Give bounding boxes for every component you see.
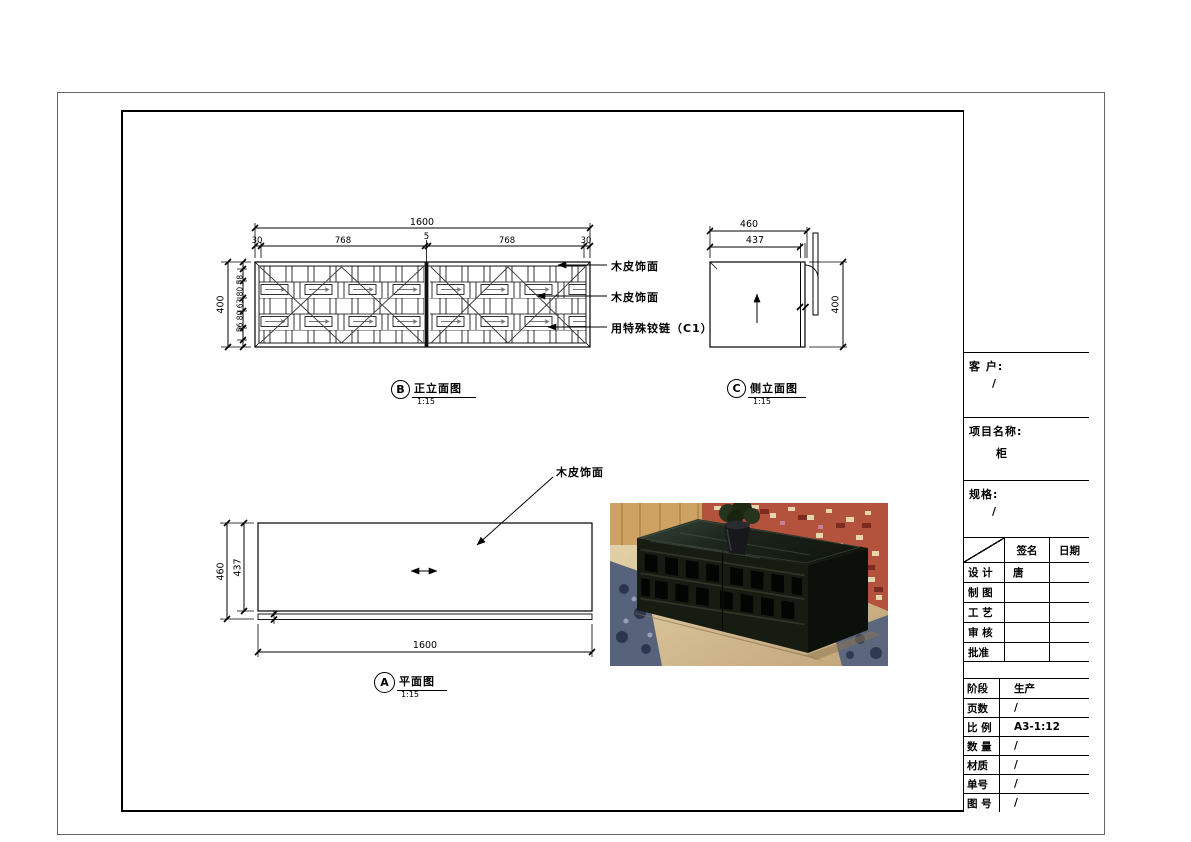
side-view-scale: 1:15 <box>753 397 771 406</box>
plan-view-letter: A <box>380 676 389 689</box>
quantity-value: / <box>999 736 1089 755</box>
row-draft-date <box>1049 582 1089 602</box>
stage-label: 阶段 <box>964 679 999 698</box>
front-view-scale: 1:15 <box>417 397 435 406</box>
pages-value: / <box>999 698 1089 717</box>
front-view-letter: B <box>396 383 404 396</box>
drawing-number-label: 图 号 <box>964 793 999 812</box>
row-draft-sign <box>1004 582 1049 602</box>
row-design-label: 设 计 <box>964 562 1004 582</box>
stage-value: 生产 <box>999 679 1089 698</box>
callout-veneer-mid: 木皮饰面 <box>611 289 659 305</box>
client-label: 客 户: <box>964 353 1089 374</box>
callout-special-hinge: 用特殊铰链（C1） <box>611 320 713 336</box>
side-view-marker: C <box>727 379 746 398</box>
front-dim-height: 400 <box>216 290 227 320</box>
spec-value: / <box>992 505 996 518</box>
front-dim-seg-right-door: 768 <box>477 236 537 246</box>
project-value: 柜 <box>996 445 1007 461</box>
signature-diagonal-cell <box>964 538 1004 562</box>
plan-view <box>220 477 595 657</box>
front-dim-seg-center: 5 <box>416 232 437 242</box>
scale-label: 比 例 <box>964 717 999 736</box>
material-label: 材质 <box>964 755 999 774</box>
sign-column-header: 签名 <box>1004 538 1049 562</box>
side-elevation <box>707 226 847 350</box>
row-design-sign: 唐 <box>1004 562 1049 582</box>
front-view-marker: B <box>391 380 410 399</box>
side-view-title: 侧立面图 <box>748 380 806 398</box>
material-value: / <box>999 755 1089 774</box>
plan-view-scale: 1:15 <box>401 690 419 699</box>
drawing-sheet: { "drawing": { "front": { "letter": "B",… <box>0 0 1191 842</box>
callout-veneer-top: 木皮饰面 <box>611 258 659 274</box>
row-design-date <box>1049 562 1089 582</box>
photo-scene <box>610 503 888 666</box>
front-dim-seg-right-end: 30 <box>573 236 599 246</box>
info-table: 阶段 生产 页数 / 比 例 A3-1:12 数 量 / 材质 / 单号 / 图… <box>964 678 1089 812</box>
front-dim-seg-left-door: 768 <box>313 236 373 246</box>
front-dim-seg-left-end: 30 <box>244 236 270 246</box>
row-draft-label: 制 图 <box>964 582 1004 602</box>
product-photo <box>610 503 888 666</box>
side-dim-depth-inner: 437 <box>734 235 776 246</box>
order-number-label: 单号 <box>964 774 999 793</box>
front-view-title: 正立面图 <box>412 380 476 398</box>
row-approve-label: 批准 <box>964 642 1004 662</box>
pages-label: 页数 <box>964 698 999 717</box>
row-review-date <box>1049 622 1089 642</box>
client-value: / <box>992 377 996 390</box>
plan-dim-width: 1600 <box>395 640 455 651</box>
row-review-sign <box>1004 622 1049 642</box>
title-block-spec: 规格: / <box>964 480 1089 537</box>
title-block-spacer <box>964 661 1089 678</box>
order-number-value: / <box>999 774 1089 793</box>
row-craft-label: 工 艺 <box>964 602 1004 622</box>
title-block: 客 户: / 项目名称: 柜 规格: / 签名 日期 设 计 唐 制 图 工 艺… <box>963 110 1089 812</box>
title-block-project: 项目名称: 柜 <box>964 417 1089 480</box>
plan-callout-veneer: 木皮饰面 <box>556 464 604 480</box>
project-label: 项目名称: <box>964 418 1089 439</box>
front-dim-total-width: 1600 <box>392 217 452 228</box>
plan-view-title: 平面图 <box>397 673 447 691</box>
signature-table: 签名 日期 设 计 唐 制 图 工 艺 审 核 批准 <box>964 537 1089 661</box>
date-column-header: 日期 <box>1049 538 1089 562</box>
drawing-number-value: / <box>999 793 1089 812</box>
row-approve-date <box>1049 642 1089 662</box>
plan-dim-depth-inner: 437 <box>233 553 244 583</box>
plan-dim-depth-total: 460 <box>216 557 227 587</box>
side-dim-height: 400 <box>831 289 842 321</box>
row-approve-sign <box>1004 642 1049 662</box>
row-craft-sign <box>1004 602 1049 622</box>
quantity-label: 数 量 <box>964 736 999 755</box>
row-review-label: 审 核 <box>964 622 1004 642</box>
title-block-client: 客 户: / <box>964 352 1089 417</box>
front-elevation <box>221 223 607 350</box>
side-dim-depth-total: 460 <box>728 219 770 230</box>
spec-label: 规格: <box>964 481 1089 502</box>
side-view-letter: C <box>732 382 740 395</box>
scale-value: A3-1:12 <box>999 717 1089 736</box>
plan-view-marker: A <box>374 672 395 693</box>
front-dim-height-stack: 56 80 63 80 58 <box>236 262 245 346</box>
row-craft-date <box>1049 602 1089 622</box>
